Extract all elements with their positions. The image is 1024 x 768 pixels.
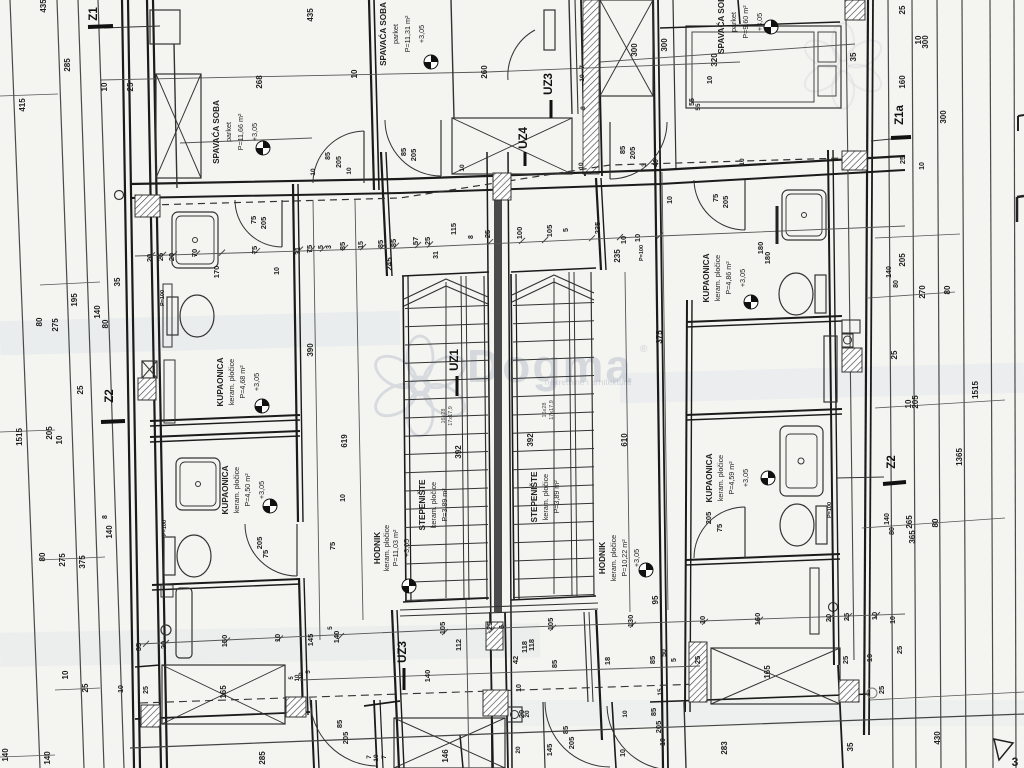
svg-text:140: 140 <box>43 751 52 765</box>
svg-text:10: 10 <box>340 494 347 502</box>
svg-text:P=100: P=100 <box>160 290 166 306</box>
svg-text:10: 10 <box>118 685 125 693</box>
svg-text:5: 5 <box>318 245 325 249</box>
svg-text:8: 8 <box>468 235 475 239</box>
svg-text:keram. pločice: keram. pločice <box>609 535 618 581</box>
svg-text:300: 300 <box>660 38 669 52</box>
svg-text:UZ3: UZ3 <box>397 641 409 663</box>
svg-text:P=10,22 m²: P=10,22 m² <box>620 539 629 577</box>
svg-text:25: 25 <box>890 350 899 359</box>
svg-text:435: 435 <box>306 8 315 22</box>
svg-text:keram. pločice: keram. pločice <box>429 482 438 528</box>
svg-text:25: 25 <box>898 5 907 14</box>
svg-text:3: 3 <box>1012 755 1019 768</box>
svg-text:5: 5 <box>327 626 334 630</box>
svg-text:10: 10 <box>667 196 674 204</box>
svg-text:55: 55 <box>695 103 702 111</box>
svg-text:STEPENIŠTE: STEPENIŠTE <box>528 471 539 522</box>
svg-text:P=100: P=100 <box>827 502 833 518</box>
svg-text:265: 265 <box>905 515 914 529</box>
svg-text:15: 15 <box>358 241 365 249</box>
svg-text:16x28: 16x28 <box>441 409 447 424</box>
svg-text:25: 25 <box>423 237 432 245</box>
svg-text:17x17,9: 17x17,9 <box>448 406 454 426</box>
svg-text:375: 375 <box>78 555 87 569</box>
svg-text:P=4,50 m²: P=4,50 m² <box>243 473 252 507</box>
svg-text:245: 245 <box>385 257 394 271</box>
svg-text:392: 392 <box>526 433 535 447</box>
svg-text:75: 75 <box>249 216 258 224</box>
svg-text:10: 10 <box>350 69 359 78</box>
svg-text:100: 100 <box>515 227 524 240</box>
svg-text:146: 146 <box>441 749 450 763</box>
svg-text:7: 7 <box>366 755 373 759</box>
svg-text:75: 75 <box>715 524 724 532</box>
svg-text:10: 10 <box>459 164 466 172</box>
svg-text:300: 300 <box>630 43 639 57</box>
svg-text:42: 42 <box>511 656 520 664</box>
svg-text:10: 10 <box>100 82 109 91</box>
svg-text:+3,05: +3,05 <box>257 481 266 499</box>
svg-text:10: 10 <box>919 162 926 170</box>
svg-text:10: 10 <box>373 754 380 762</box>
svg-text:390: 390 <box>306 343 315 357</box>
svg-text:205: 205 <box>898 253 907 267</box>
svg-text:260: 260 <box>480 65 489 79</box>
svg-text:nekretnine i arhitektura: nekretnine i arhitektura <box>545 377 632 387</box>
svg-text:145: 145 <box>306 634 315 647</box>
svg-text:205: 205 <box>567 737 576 750</box>
svg-text:+3,05: +3,05 <box>632 549 641 567</box>
svg-text:205: 205 <box>628 147 637 160</box>
svg-text:35: 35 <box>849 52 858 61</box>
svg-text:320: 320 <box>710 53 719 67</box>
svg-text:SPAVAĆA SOBA: SPAVAĆA SOBA <box>715 0 726 54</box>
svg-text:16x28: 16x28 <box>542 403 548 418</box>
svg-text:10: 10 <box>620 749 627 757</box>
svg-text:P=4,68 m²: P=4,68 m² <box>238 365 247 399</box>
svg-text:75: 75 <box>250 246 259 254</box>
svg-text:140: 140 <box>886 266 893 278</box>
svg-text:7: 7 <box>381 755 388 759</box>
svg-text:130: 130 <box>626 615 635 628</box>
svg-text:205: 205 <box>255 537 264 550</box>
svg-text:150: 150 <box>220 635 229 648</box>
svg-text:140: 140 <box>1 748 10 762</box>
svg-text:keram. pločice: keram. pločice <box>232 467 241 513</box>
svg-text:+3,05: +3,05 <box>738 269 747 287</box>
svg-text:25: 25 <box>895 646 904 654</box>
svg-text:keram. pločice: keram. pločice <box>382 525 391 571</box>
svg-text:P=11,31 m²: P=11,31 m² <box>403 15 412 52</box>
svg-text:UZ3: UZ3 <box>543 73 555 95</box>
svg-text:300: 300 <box>921 35 930 49</box>
svg-text:10: 10 <box>310 168 317 176</box>
svg-text:75: 75 <box>261 550 270 558</box>
svg-text:parket: parket <box>391 24 400 44</box>
svg-text:435: 435 <box>39 0 48 13</box>
svg-text:140: 140 <box>105 525 114 539</box>
svg-text:25: 25 <box>898 156 907 164</box>
svg-text:+3,05: +3,05 <box>252 373 261 391</box>
svg-text:95: 95 <box>651 595 660 604</box>
svg-text:3: 3 <box>326 245 333 249</box>
svg-text:25: 25 <box>76 385 85 394</box>
svg-text:10: 10 <box>660 738 667 746</box>
svg-text:25: 25 <box>693 656 702 664</box>
svg-text:Z1: Z1 <box>88 7 100 21</box>
svg-text:85: 85 <box>335 720 344 728</box>
svg-text:25: 25 <box>842 613 851 621</box>
svg-text:+3,05: +3,05 <box>755 13 764 31</box>
svg-text:80: 80 <box>943 285 952 294</box>
svg-text:610: 610 <box>620 433 629 447</box>
svg-text:10: 10 <box>61 670 70 679</box>
svg-text:20: 20 <box>524 710 531 718</box>
svg-text:205: 205 <box>654 721 663 734</box>
svg-text:P=9,60 m²: P=9,60 m² <box>741 5 750 39</box>
svg-text:31: 31 <box>433 251 440 259</box>
svg-text:HODNIK: HODNIK <box>598 542 607 574</box>
svg-text:85: 85 <box>561 726 570 734</box>
svg-text:365: 365 <box>908 530 917 544</box>
svg-text:parket: parket <box>224 122 233 142</box>
svg-text:80: 80 <box>931 518 940 527</box>
svg-text:25: 25 <box>156 253 165 261</box>
svg-text:57: 57 <box>411 237 420 245</box>
svg-text:112: 112 <box>454 639 463 651</box>
svg-text:10: 10 <box>622 710 629 718</box>
svg-text:15: 15 <box>657 688 664 696</box>
svg-text:10: 10 <box>865 654 874 662</box>
svg-text:25: 25 <box>877 686 886 694</box>
svg-text:20: 20 <box>824 614 833 622</box>
svg-text:275: 275 <box>51 318 60 332</box>
svg-text:+3,05: +3,05 <box>417 25 426 43</box>
svg-text:10: 10 <box>578 162 585 170</box>
svg-text:10: 10 <box>273 634 282 642</box>
svg-text:keram. pločice: keram. pločice <box>713 255 722 301</box>
svg-text:10: 10 <box>705 76 714 84</box>
svg-text:85: 85 <box>399 148 408 156</box>
svg-text:235: 235 <box>613 249 622 263</box>
svg-text:300: 300 <box>939 110 948 124</box>
svg-text:140: 140 <box>423 670 432 683</box>
svg-text:275: 275 <box>58 553 67 567</box>
svg-text:+3,05: +3,05 <box>402 539 411 557</box>
svg-text:10: 10 <box>516 684 523 692</box>
svg-text:85: 85 <box>376 240 385 248</box>
svg-text:7: 7 <box>579 65 586 69</box>
svg-text:75: 75 <box>305 245 314 253</box>
svg-text:140: 140 <box>93 305 102 319</box>
svg-text:50: 50 <box>661 649 668 657</box>
svg-text:75: 75 <box>328 542 337 550</box>
svg-text:5: 5 <box>563 228 570 232</box>
svg-text:P=3,89 m²: P=3,89 m² <box>552 480 561 514</box>
svg-text:283: 283 <box>720 741 729 755</box>
svg-text:31: 31 <box>295 247 302 255</box>
svg-text:P=11,03 m²: P=11,03 m² <box>391 529 400 566</box>
svg-text:3: 3 <box>641 163 648 167</box>
svg-text:P=100: P=100 <box>162 520 168 536</box>
svg-text:8: 8 <box>102 515 109 519</box>
svg-text:205: 205 <box>259 217 268 230</box>
svg-text:SPAVAĆA SOBA: SPAVAĆA SOBA <box>210 100 221 164</box>
svg-text:80: 80 <box>101 319 110 328</box>
svg-text:8: 8 <box>580 106 587 110</box>
svg-text:10: 10 <box>698 616 707 624</box>
svg-text:35: 35 <box>846 742 855 751</box>
svg-text:10: 10 <box>298 672 305 680</box>
svg-text:170: 170 <box>212 266 221 279</box>
svg-text:5: 5 <box>671 658 678 662</box>
svg-text:80: 80 <box>893 280 900 288</box>
svg-text:10: 10 <box>346 167 353 175</box>
svg-text:17x17,9: 17x17,9 <box>549 400 555 420</box>
svg-text:10: 10 <box>55 435 64 444</box>
svg-text:parket: parket <box>729 12 738 32</box>
svg-text:415: 415 <box>18 98 27 112</box>
svg-text:85: 85 <box>325 152 332 160</box>
svg-text:105: 105 <box>546 618 555 631</box>
svg-text:25: 25 <box>485 622 494 630</box>
svg-text:392: 392 <box>454 445 463 459</box>
svg-text:430: 430 <box>933 731 942 745</box>
svg-text:P=4,86 m²: P=4,86 m² <box>724 261 733 295</box>
svg-text:25: 25 <box>143 686 150 694</box>
svg-text:10: 10 <box>274 267 281 275</box>
svg-text:205: 205 <box>341 732 350 745</box>
svg-text:285: 285 <box>63 58 72 72</box>
svg-text:160: 160 <box>753 613 762 626</box>
svg-text:1365: 1365 <box>955 448 964 466</box>
svg-text:KUPAONICA: KUPAONICA <box>705 453 714 502</box>
svg-text:165: 165 <box>763 665 772 679</box>
svg-text:160: 160 <box>898 75 907 89</box>
svg-text:20: 20 <box>515 746 522 754</box>
svg-text:keram. pločice: keram. pločice <box>716 455 725 501</box>
svg-text:375: 375 <box>655 330 664 344</box>
svg-text:20: 20 <box>145 254 154 262</box>
svg-text:+3,05: +3,05 <box>741 469 750 487</box>
svg-text:10: 10 <box>904 399 913 408</box>
svg-text:619: 619 <box>340 434 349 448</box>
svg-text:KUPAONICA: KUPAONICA <box>221 465 230 514</box>
svg-text:P=3,89 m²: P=3,89 m² <box>440 488 449 522</box>
svg-text:105: 105 <box>438 622 447 635</box>
svg-text:205: 205 <box>45 426 54 440</box>
svg-text:80: 80 <box>38 552 47 561</box>
svg-text:+3,05: +3,05 <box>250 123 259 141</box>
svg-text:85: 85 <box>618 146 627 154</box>
svg-text:10: 10 <box>870 612 879 620</box>
svg-text:25: 25 <box>126 82 135 91</box>
svg-text:P=100: P=100 <box>639 245 645 261</box>
svg-text:HODNIK: HODNIK <box>373 532 382 564</box>
svg-text:70: 70 <box>190 249 199 257</box>
svg-text:80: 80 <box>889 527 896 535</box>
svg-text:165: 165 <box>219 685 228 699</box>
svg-text:25: 25 <box>483 230 492 238</box>
svg-text:268: 268 <box>255 75 264 89</box>
svg-text:115: 115 <box>449 223 458 235</box>
svg-text:18: 18 <box>603 657 612 665</box>
svg-text:40: 40 <box>653 159 660 167</box>
svg-text:205: 205 <box>409 149 418 162</box>
svg-text:205: 205 <box>721 196 730 209</box>
svg-text:Z2: Z2 <box>886 455 898 468</box>
svg-text:KUPAONICA: KUPAONICA <box>216 357 225 406</box>
svg-text:235: 235 <box>593 222 602 235</box>
svg-text:Z2: Z2 <box>104 389 116 402</box>
svg-text:KUPAONICA: KUPAONICA <box>702 253 711 302</box>
svg-text:1515: 1515 <box>15 428 24 446</box>
svg-text:25: 25 <box>841 656 850 664</box>
svg-text:35: 35 <box>134 643 143 651</box>
svg-text:85: 85 <box>550 660 559 668</box>
svg-text:205: 205 <box>704 512 713 525</box>
svg-text:180: 180 <box>763 252 772 265</box>
svg-text:80: 80 <box>35 317 44 326</box>
svg-text:SPAVAĆA SOBA: SPAVAĆA SOBA <box>377 2 388 66</box>
svg-text:285: 285 <box>258 751 267 765</box>
svg-text:85: 85 <box>649 708 658 716</box>
svg-text:105: 105 <box>545 225 554 238</box>
svg-text:20: 20 <box>159 641 168 649</box>
svg-text:keram. pločice: keram. pločice <box>227 359 236 405</box>
svg-text:UZ4: UZ4 <box>518 127 530 149</box>
svg-text:145: 145 <box>545 744 554 757</box>
svg-text:P=4,59 m²: P=4,59 m² <box>727 461 736 495</box>
svg-text:140: 140 <box>332 631 341 644</box>
svg-text:270: 270 <box>918 285 927 299</box>
svg-text:10: 10 <box>619 236 628 244</box>
svg-text:®: ® <box>640 344 648 355</box>
svg-text:10: 10 <box>633 234 642 242</box>
svg-text:6: 6 <box>499 625 506 629</box>
svg-text:1515: 1515 <box>971 381 980 399</box>
svg-text:75: 75 <box>711 194 720 202</box>
svg-text:10: 10 <box>890 616 897 624</box>
svg-text:10: 10 <box>579 74 586 82</box>
svg-text:25: 25 <box>81 683 90 692</box>
svg-text:20: 20 <box>167 253 176 261</box>
svg-text:195: 195 <box>70 293 79 307</box>
svg-text:118: 118 <box>520 641 529 653</box>
svg-text:85: 85 <box>338 242 347 250</box>
svg-text:85: 85 <box>648 656 657 664</box>
svg-text:35: 35 <box>113 277 122 286</box>
svg-text:UZ1: UZ1 <box>449 349 461 371</box>
svg-text:Z1a: Z1a <box>894 104 906 124</box>
svg-text:keram. pločice: keram. pločice <box>541 474 550 520</box>
svg-text:P=11,66 m²: P=11,66 m² <box>236 113 245 150</box>
svg-text:10: 10 <box>739 158 746 166</box>
svg-text:STEPENIŠTE: STEPENIŠTE <box>416 479 427 530</box>
svg-text:85: 85 <box>389 239 398 247</box>
svg-text:205: 205 <box>336 156 343 168</box>
svg-text:140: 140 <box>884 513 891 525</box>
